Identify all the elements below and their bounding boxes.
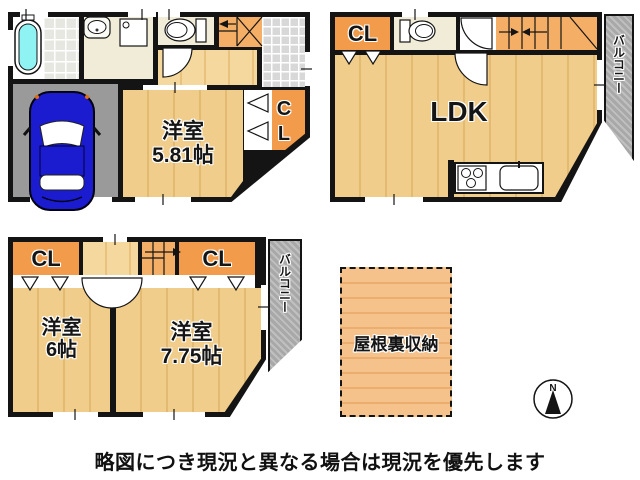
toilet-room-1f <box>158 17 214 45</box>
kitchen-counter <box>454 162 544 194</box>
window <box>365 197 423 202</box>
floor2-plan: CL LDK <box>330 12 602 202</box>
window <box>8 30 13 66</box>
compass: N <box>534 380 572 418</box>
closet-door-band-3f <box>13 275 255 288</box>
window <box>128 12 156 17</box>
window <box>135 197 191 202</box>
closet-3f-left: CL <box>13 242 79 275</box>
room-3f-left-size: 6帖 <box>46 339 77 361</box>
closet-2f: CL <box>335 17 390 50</box>
balcony-3f: バルコニー <box>268 239 302 375</box>
window <box>20 12 48 17</box>
disclaimer-text: 略図につき現況と異なる場合は現況を優先します <box>0 446 640 475</box>
floor3-plan: CL CL 洋室 6帖 洋室 7.75帖 <box>8 237 266 417</box>
toilet-door-area-2f <box>460 17 496 50</box>
room-3f-right-label: 洋室 <box>171 321 213 345</box>
closet-3f-left-label: CL <box>31 246 60 272</box>
garage <box>13 84 118 197</box>
compass-north-label: N <box>549 383 556 394</box>
closet-1f: CL <box>272 90 305 150</box>
attic-storage-label: 屋根裏収納 <box>354 330 439 355</box>
room-1f: 洋室 5.81帖 <box>123 90 243 197</box>
room-1f-size: 5.81帖 <box>152 144 214 168</box>
bathroom-floor <box>43 17 79 79</box>
balcony-door-2f <box>597 60 602 110</box>
window <box>402 12 428 17</box>
stairs-2f <box>496 17 597 50</box>
room-3f-right: 洋室 7.75帖 <box>116 288 261 412</box>
entrance-door <box>305 52 310 86</box>
balcony-3f-label: バルコニー <box>277 253 294 313</box>
stairs-3f <box>142 242 175 275</box>
balcony-door-3f <box>261 285 266 330</box>
balcony-2f: バルコニー <box>604 14 634 164</box>
garage-opening <box>30 197 112 202</box>
compass-needle <box>545 390 561 414</box>
ldk-label: LDK <box>430 96 488 127</box>
closet-1f-label: CL <box>272 98 295 148</box>
toilet-room-2f <box>394 17 456 50</box>
closet-3f-right: CL <box>179 242 255 275</box>
room-3f-right-size: 7.75帖 <box>161 345 223 369</box>
window <box>143 412 205 417</box>
floor1-plan: 洋室 5.81帖 CL <box>8 12 310 202</box>
window <box>103 237 127 242</box>
window <box>158 12 180 17</box>
hall-3f <box>83 242 138 275</box>
closet-door-strip-1f <box>243 90 273 150</box>
sliding-door-opening <box>143 85 207 90</box>
closet-3f-right-label: CL <box>202 246 231 272</box>
entrance-1f <box>262 17 305 87</box>
room-3f-left-label: 洋室 <box>42 317 82 339</box>
window <box>53 412 98 417</box>
hall-1f <box>158 50 257 85</box>
bathroom-tub-area <box>13 17 43 79</box>
balcony-2f-label: バルコニー <box>611 34 628 94</box>
closet-2f-label: CL <box>348 21 377 47</box>
attic-storage: 屋根裏収納 <box>340 267 452 417</box>
washroom <box>84 17 153 79</box>
room-1f-label: 洋室 <box>162 120 204 144</box>
stairs-1f <box>219 17 262 47</box>
floorplan-page: 洋室 5.81帖 CL CL LDK <box>0 0 640 480</box>
room-3f-left: 洋室 6帖 <box>13 288 110 412</box>
